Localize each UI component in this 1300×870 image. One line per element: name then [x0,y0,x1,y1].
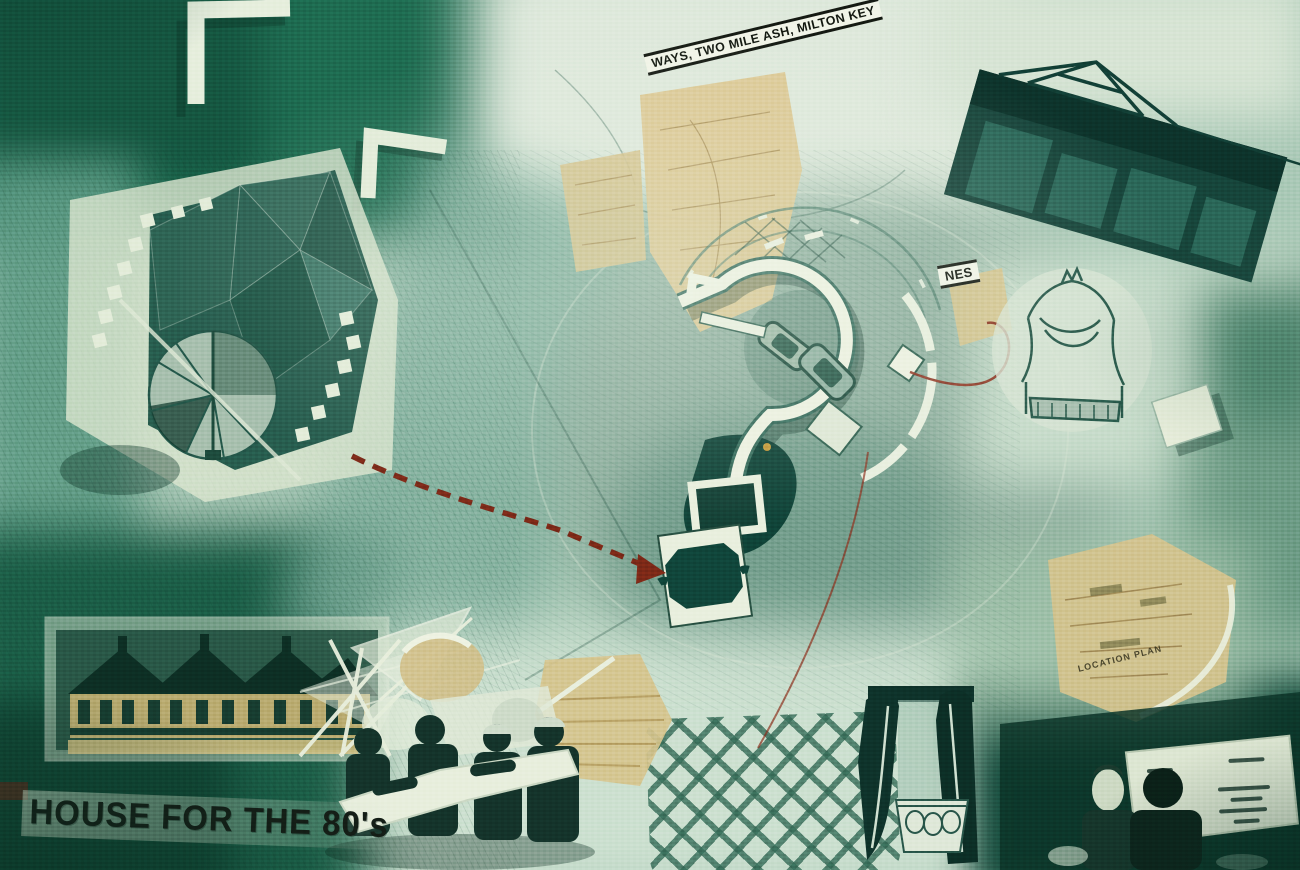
canopy-bed-engraving [992,268,1152,432]
location-plan-fragment [1048,534,1236,722]
presentation-scene [1000,692,1300,870]
question-mark-building [653,265,932,628]
pavilion-elevation [944,32,1300,287]
orange-dot [763,443,771,451]
collage-drawing-layer [0,0,1300,870]
curtain-structure-engraving [858,686,978,864]
white-marker-rect [1152,381,1234,459]
red-dashed-arrow [352,456,640,564]
collage-artwork: WAYS, TWO MILE ASH, MILTON KEY NES HOUSE… [0,0,1300,870]
outer-arc-wall [862,295,932,478]
question-mark-dot-pool [653,524,755,628]
left-architectural-plan [60,148,398,502]
newspaper-headline-fragment-text: NES [944,264,974,284]
